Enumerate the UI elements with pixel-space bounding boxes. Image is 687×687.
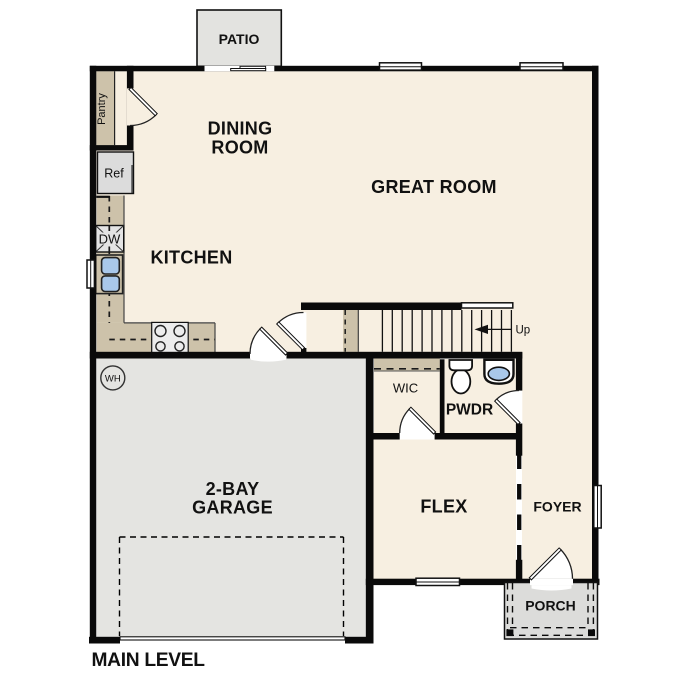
svg-text:MAIN LEVEL: MAIN LEVEL — [92, 650, 206, 671]
svg-text:WH: WH — [105, 373, 121, 384]
svg-text:DW: DW — [99, 232, 121, 247]
svg-text:PORCH: PORCH — [525, 598, 576, 614]
svg-text:PATIO: PATIO — [219, 31, 260, 47]
svg-text:WIC: WIC — [393, 381, 418, 396]
svg-text:KITCHEN: KITCHEN — [150, 248, 232, 268]
svg-text:PWDR: PWDR — [446, 402, 493, 419]
svg-text:GREAT ROOM: GREAT ROOM — [371, 177, 497, 197]
svg-text:2-BAY: 2-BAY — [206, 479, 260, 499]
svg-text:ROOM: ROOM — [211, 138, 268, 158]
svg-text:Up: Up — [516, 325, 531, 337]
svg-text:FOYER: FOYER — [533, 499, 581, 515]
svg-text:GARAGE: GARAGE — [192, 498, 273, 518]
svg-text:DINING: DINING — [208, 119, 273, 139]
svg-text:Pantry: Pantry — [96, 93, 108, 125]
svg-text:FLEX: FLEX — [420, 497, 467, 517]
svg-text:Ref: Ref — [104, 167, 124, 181]
